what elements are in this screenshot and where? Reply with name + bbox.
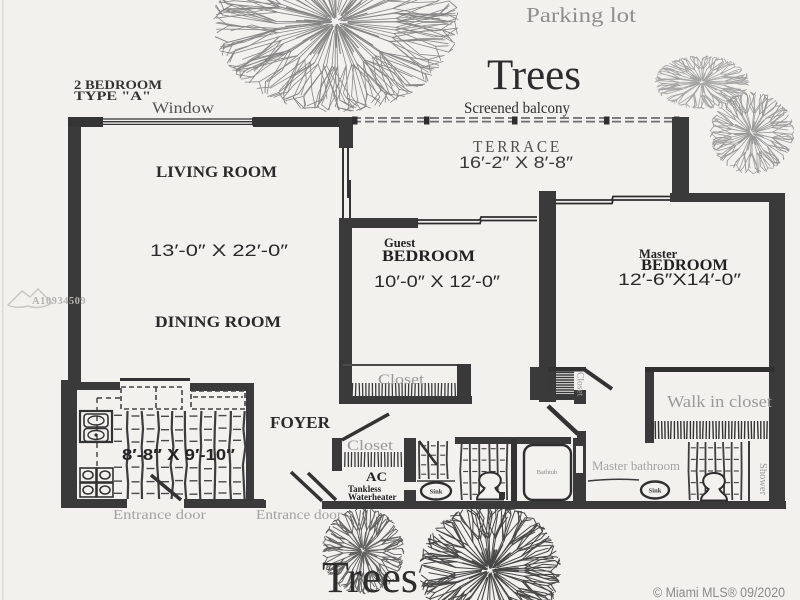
svg-text:Bathtub: Bathtub [537,469,558,476]
svg-text:Closet: Closet [347,438,393,454]
svg-text:Walk in closet: Walk in closet [667,392,772,411]
svg-text:© Miami MLS® 09/2020: © Miami MLS® 09/2020 [653,585,785,600]
svg-text:Entrance door: Entrance door [113,507,207,522]
svg-text:Shower: Shower [757,463,768,496]
svg-text:Window: Window [152,100,214,117]
svg-text:FOYER: FOYER [270,413,331,432]
svg-text:Closet: Closet [378,372,424,388]
svg-text:Trees: Trees [487,52,581,99]
svg-text:BEDROOM: BEDROOM [382,248,475,265]
svg-text:10′-0″ X 12′-0″: 10′-0″ X 12′-0″ [374,273,500,291]
svg-text:Waterheater: Waterheater [348,492,396,502]
svg-text:A10934509: A10934509 [32,296,86,307]
svg-text:Sink: Sink [430,489,443,496]
svg-text:13′-0″ X 22′-0″: 13′-0″ X 22′-0″ [150,241,288,260]
svg-text:12′-6″X14′-0″: 12′-6″X14′-0″ [618,271,741,289]
svg-text:8′-8″ X 9′-10″: 8′-8″ X 9′-10″ [122,447,235,464]
svg-text:Sink: Sink [649,488,662,495]
svg-text:Parking lot: Parking lot [526,3,636,27]
svg-text:DINING ROOM: DINING ROOM [155,314,281,331]
svg-text:Screened balcony: Screened balcony [464,100,570,117]
svg-text:Entrance door: Entrance door [256,507,343,522]
svg-text:TYPE "A": TYPE "A" [74,89,151,103]
svg-text:16′-2″ X 8′-8″: 16′-2″ X 8′-8″ [459,154,573,172]
svg-text:LIVING ROOM: LIVING ROOM [156,164,277,181]
svg-text:Master bathroom: Master bathroom [592,459,680,473]
svg-text:Closet: Closet [575,372,585,397]
svg-text:Trees: Trees [322,553,418,600]
svg-text:AC: AC [366,469,387,484]
